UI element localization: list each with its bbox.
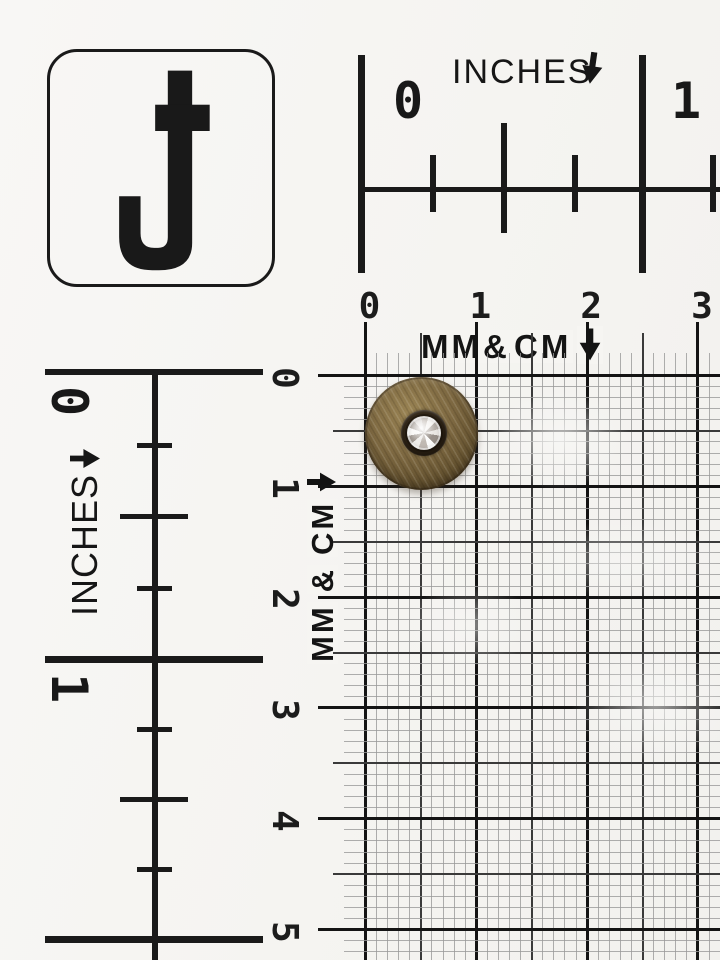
grid-hline — [344, 951, 720, 952]
grid-hline — [318, 817, 720, 820]
top-inch-ruler-baseline — [362, 187, 720, 192]
cm-scale-digit: 1 — [266, 477, 302, 499]
right-arrow-icon — [306, 472, 338, 492]
left-inch-number-1: 1 — [44, 663, 94, 713]
grid-vline — [553, 353, 554, 960]
vertical-mmcm-label: MM & CM — [302, 474, 342, 664]
grid-hline — [344, 696, 720, 697]
top-ruler-tick — [501, 123, 507, 233]
cm-scale-digit: 0 — [266, 367, 302, 389]
grid-hline — [344, 863, 720, 864]
top-ruler-tick — [710, 155, 716, 212]
cm-scale-digit: 4 — [266, 810, 302, 832]
grid-hline — [344, 885, 720, 886]
grid-hline — [344, 497, 720, 498]
grid-hline — [318, 596, 720, 599]
cm-scale-number: 2 — [573, 289, 609, 325]
grid-hline — [344, 840, 720, 841]
cm-scale-number: 5 — [264, 913, 304, 951]
grid-hline — [344, 685, 720, 686]
cm-scale-number: 3 — [684, 289, 720, 325]
grid-hline — [344, 918, 720, 919]
grid-vline — [520, 353, 521, 960]
cm-scale-number: 0 — [352, 289, 388, 325]
cm-scale-number: 1 — [462, 289, 498, 325]
grid-vline — [576, 353, 577, 960]
cm-scale-number: 4 — [264, 802, 304, 840]
grid-hline — [344, 508, 720, 509]
grid-hline — [344, 940, 720, 941]
grid-hline — [344, 552, 720, 553]
left-ruler-tick — [137, 867, 172, 872]
grid-hline — [344, 752, 720, 753]
grid-vline — [498, 353, 499, 960]
grid-hline — [344, 519, 720, 520]
grid-hline — [344, 796, 720, 797]
grid-vline — [598, 353, 599, 960]
left-ruler-tick — [137, 586, 172, 591]
grid-hline — [318, 706, 720, 709]
grid-hline — [344, 807, 720, 808]
grid-vline — [509, 353, 510, 960]
grid-vline — [675, 353, 676, 960]
grid-hline — [344, 896, 720, 897]
down-arrow-icon — [579, 51, 605, 87]
grid-hline — [344, 641, 720, 642]
grid-hline — [344, 530, 720, 531]
mmcm-label-mm: MM — [307, 602, 338, 664]
grid-hline — [344, 785, 720, 786]
left-ruler-tick — [45, 369, 263, 375]
down-arrow-icon — [70, 448, 101, 469]
photo-canvas: 0 1 INCHES MM & CM MM & CM 0 1 INCHES — [0, 0, 720, 960]
grid-vline — [709, 353, 710, 960]
grid-hline — [344, 574, 720, 575]
mmcm-label-amp: & — [481, 330, 512, 363]
cm-scale-digit: 2 — [266, 588, 302, 610]
top-ruler-tick — [358, 55, 365, 273]
grid-vline — [487, 353, 488, 960]
cm-scale-digit: 5 — [266, 921, 302, 943]
top-inch-number-1: 1 — [660, 76, 712, 126]
cm-scale-number: 2 — [264, 580, 304, 618]
grid-hline — [333, 762, 720, 764]
grid-hline — [333, 873, 720, 875]
top-ruler-tick — [430, 155, 436, 212]
grid-hline — [344, 563, 720, 564]
mmcm-label-cm: CM — [307, 499, 338, 557]
grid-hline — [333, 541, 720, 543]
grid-vline — [620, 353, 621, 960]
left-ruler-tick — [120, 797, 188, 802]
left-ruler-tick — [120, 514, 188, 519]
grid-hline — [333, 652, 720, 654]
grid-vline — [642, 333, 644, 960]
mmcm-label-amp: & — [307, 565, 338, 594]
grid-hline — [318, 374, 720, 377]
grid-hline — [344, 829, 720, 830]
grid-hline — [318, 928, 720, 931]
brand-logo-box — [47, 49, 275, 287]
left-ruler-tick — [137, 443, 172, 448]
grid-hline — [344, 907, 720, 908]
left-ruler-tick — [137, 727, 172, 732]
grid-vline — [653, 353, 654, 960]
grid-vline — [531, 333, 533, 960]
button-bezel — [401, 410, 447, 456]
grid-hline — [344, 719, 720, 720]
cm-scale-number: 1 — [264, 469, 304, 507]
grid-vline — [609, 353, 610, 960]
grid-hline — [344, 741, 720, 742]
j-cross-monogram-icon — [50, 52, 272, 284]
grid-hline — [318, 485, 720, 488]
grid-hline — [344, 663, 720, 664]
cm-scale-digit: 3 — [266, 699, 302, 721]
top-inch-number-0: 0 — [382, 76, 434, 126]
grid-vline — [686, 353, 687, 960]
left-ruler-tick — [45, 656, 263, 663]
grid-hline — [344, 630, 720, 631]
brass-rhinestone-button — [365, 377, 478, 490]
top-inches-label: INCHES — [452, 53, 592, 92]
cm-scale-number: 3 — [264, 691, 304, 729]
left-inches-label: INCHES — [64, 446, 106, 616]
grid-vline — [664, 353, 665, 960]
grid-hline — [344, 774, 720, 775]
grid-vline — [542, 353, 543, 960]
left-ruler-tick — [45, 936, 263, 943]
top-ruler-tick — [639, 55, 646, 273]
left-inch-number-0: 0 — [44, 376, 94, 426]
grid-hline — [344, 674, 720, 675]
down-arrow-icon — [577, 326, 603, 364]
button-rhinestone — [407, 416, 441, 450]
grid-hline — [344, 619, 720, 620]
grid-vline — [631, 353, 632, 960]
cm-scale-number: 0 — [264, 359, 304, 397]
grid-hline — [344, 608, 720, 609]
grid-hline — [344, 852, 720, 853]
grid-hline — [344, 586, 720, 587]
top-ruler-tick — [572, 155, 578, 212]
grid-vline — [564, 353, 565, 960]
grid-hline — [344, 730, 720, 731]
